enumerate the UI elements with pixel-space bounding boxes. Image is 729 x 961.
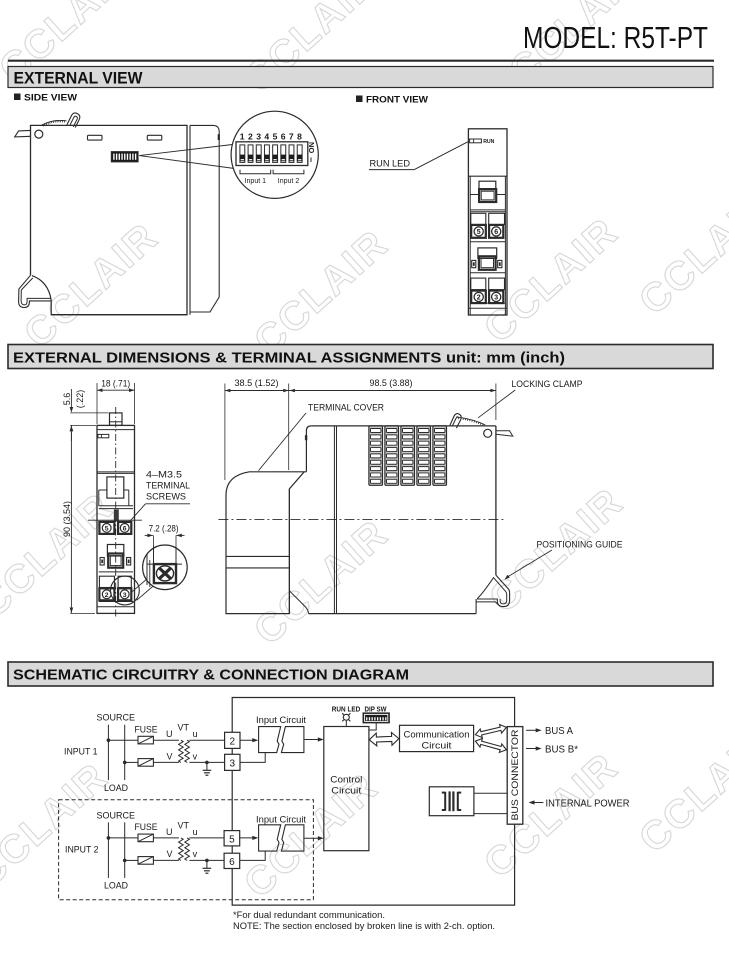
svg-text:INTERNAL POWER: INTERNAL POWER [546, 798, 630, 809]
svg-text:2: 2 [477, 295, 481, 302]
svg-text:Communication: Communication [404, 729, 470, 740]
svg-text:5: 5 [477, 229, 481, 236]
svg-text:7.2 (.28): 7.2 (.28) [149, 524, 179, 534]
svg-text:SIDE VIEW: SIDE VIEW [24, 93, 77, 104]
svg-text:V: V [167, 849, 173, 859]
svg-text:Input 1: Input 1 [245, 176, 267, 185]
svg-text:CCLAIR: CCLAIR [246, 221, 397, 363]
svg-text:Control: Control [330, 775, 362, 786]
svg-text:18 (.71): 18 (.71) [101, 379, 130, 389]
svg-text:5: 5 [229, 835, 235, 846]
svg-text:5: 5 [105, 526, 109, 533]
svg-text:RUN LED: RUN LED [332, 705, 361, 714]
svg-text:U: U [166, 827, 173, 837]
svg-text:ON: ON [307, 142, 316, 153]
svg-text:BUS A: BUS A [545, 726, 573, 737]
svg-text:Circuit: Circuit [422, 740, 452, 751]
svg-text:3: 3 [494, 295, 498, 302]
svg-text:FRONT VIEW: FRONT VIEW [366, 95, 428, 106]
svg-text:TERMINAL: TERMINAL [146, 481, 190, 492]
svg-text:98.5 (3.88): 98.5 (3.88) [370, 378, 413, 388]
svg-text:6: 6 [494, 229, 498, 236]
svg-text:SOURCE: SOURCE [97, 713, 136, 724]
svg-text:6: 6 [123, 526, 127, 533]
svg-text:BUS CONNECTOR: BUS CONNECTOR [510, 730, 520, 821]
svg-text:90 (3.54): 90 (3.54) [62, 501, 72, 537]
svg-text:MODEL: R5T-PT: MODEL: R5T-PT [523, 20, 708, 55]
svg-text:CCLAIR: CCLAIR [16, 214, 167, 356]
svg-text:FUSE: FUSE [135, 822, 158, 833]
svg-text:INPUT 1: INPUT 1 [64, 747, 98, 758]
svg-text:CCLAIR: CCLAIR [631, 719, 729, 861]
svg-text:2: 2 [105, 592, 109, 599]
svg-text:*For dual redundant communicat: *For dual redundant communication. [233, 910, 385, 920]
svg-text:CCLAIR: CCLAIR [481, 479, 632, 621]
svg-text:LOAD: LOAD [104, 783, 128, 794]
svg-text:SCREWS: SCREWS [146, 492, 186, 503]
svg-text:8: 8 [297, 131, 302, 141]
svg-text:1: 1 [240, 131, 245, 141]
svg-text:POSITIONING GUIDE: POSITIONING GUIDE [537, 540, 623, 550]
svg-text:2: 2 [230, 737, 236, 748]
svg-text:Input Circuit: Input Circuit [256, 815, 306, 826]
svg-text:EXTERNAL VIEW: EXTERNAL VIEW [14, 70, 143, 88]
svg-text:6: 6 [281, 131, 286, 141]
svg-text:NOTE: The section enclosed by: NOTE: The section enclosed by broken lin… [233, 921, 495, 931]
svg-text:DIP SW: DIP SW [365, 705, 387, 714]
svg-text:SCHEMATIC CIRCUITRY & CONNECTI: SCHEMATIC CIRCUITRY & CONNECTION DIAGRAM [13, 667, 409, 684]
svg-text:(.22): (.22) [75, 390, 85, 409]
svg-text:4–M3.5: 4–M3.5 [146, 470, 182, 481]
svg-text:Circuit: Circuit [331, 786, 361, 797]
svg-text:2: 2 [248, 131, 253, 141]
svg-text:VT: VT [178, 821, 190, 831]
svg-text:RUN LED: RUN LED [370, 158, 411, 169]
svg-text:BUS B*: BUS B* [545, 744, 578, 755]
svg-text:4: 4 [264, 131, 269, 141]
svg-text:EXTERNAL DIMENSIONS & TERMINAL: EXTERNAL DIMENSIONS & TERMINAL ASSIGNMEN… [13, 350, 565, 367]
svg-text:TERMINAL COVER: TERMINAL COVER [308, 403, 384, 413]
svg-text:RUN: RUN [483, 139, 494, 145]
svg-text:CCLAIR: CCLAIR [631, 181, 729, 323]
svg-text:5: 5 [273, 131, 278, 141]
svg-text:CCLAIR: CCLAIR [476, 209, 627, 351]
svg-text:3: 3 [123, 592, 127, 599]
svg-text:38.5 (1.52): 38.5 (1.52) [235, 378, 279, 388]
svg-text:3: 3 [230, 759, 236, 770]
svg-text:v: v [193, 751, 198, 761]
svg-text:U: U [166, 729, 173, 739]
svg-text:3: 3 [256, 131, 261, 141]
svg-text:VT: VT [178, 723, 190, 733]
svg-text:CCLAIR: CCLAIR [476, 744, 627, 886]
svg-text:7: 7 [289, 131, 294, 141]
svg-text:Input 2: Input 2 [278, 176, 300, 185]
svg-text:6: 6 [229, 857, 235, 868]
svg-text:SOURCE: SOURCE [97, 810, 136, 821]
svg-text:FUSE: FUSE [135, 724, 158, 735]
svg-text:INPUT 2: INPUT 2 [65, 844, 99, 855]
svg-text:u: u [193, 729, 198, 739]
svg-text:Input Circuit: Input Circuit [256, 715, 306, 726]
svg-text:5.6: 5.6 [62, 393, 72, 406]
svg-text:u: u [193, 827, 198, 837]
svg-text:LOAD: LOAD [104, 881, 128, 892]
svg-text:CCLAIR: CCLAIR [246, 511, 397, 653]
svg-text:v: v [193, 849, 198, 859]
svg-text:V: V [167, 751, 173, 761]
svg-text:LOCKING CLAMP: LOCKING CLAMP [512, 379, 583, 389]
